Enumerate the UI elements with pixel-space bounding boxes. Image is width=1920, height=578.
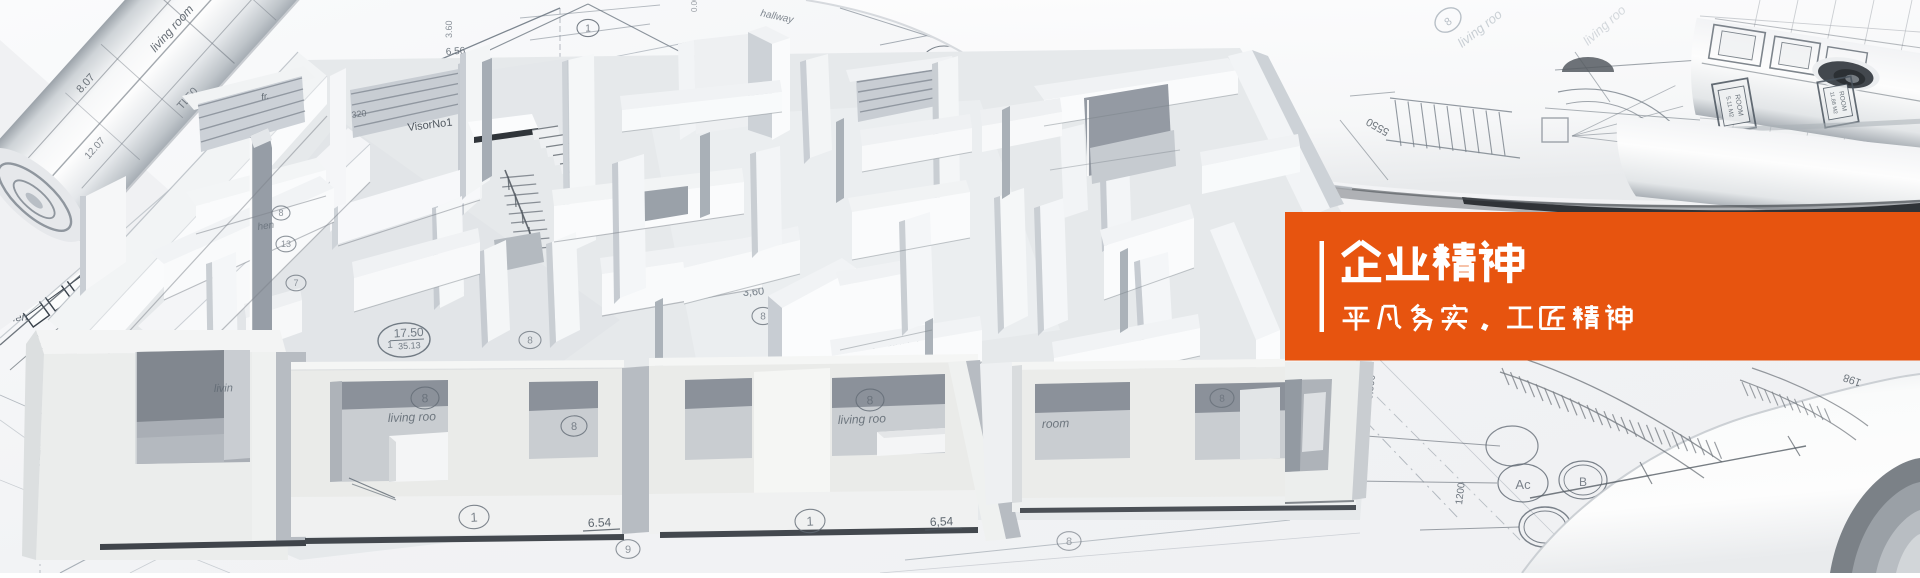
svg-text:320: 320: [351, 108, 367, 120]
svg-text:living roo: living roo: [388, 409, 437, 425]
svg-text:8: 8: [1219, 393, 1225, 404]
svg-text:8: 8: [866, 393, 873, 407]
svg-text:13: 13: [281, 239, 291, 249]
svg-text:1: 1: [806, 514, 814, 529]
svg-text:0.00: 0.00: [690, 0, 699, 12]
svg-text:8: 8: [527, 336, 533, 347]
svg-text:8: 8: [278, 208, 283, 218]
svg-text:8: 8: [1066, 536, 1072, 548]
svg-text:7: 7: [293, 278, 298, 288]
svg-text:Ac: Ac: [1515, 477, 1531, 492]
svg-text:8: 8: [421, 391, 428, 405]
svg-text:1: 1: [387, 340, 394, 351]
svg-text:35.13: 35.13: [398, 340, 421, 351]
svg-text:room: room: [1042, 416, 1070, 431]
svg-text:livin: livin: [214, 382, 233, 395]
svg-text:8: 8: [760, 312, 766, 323]
svg-text:3.60: 3.60: [444, 20, 454, 38]
svg-text:17.50: 17.50: [393, 325, 424, 341]
svg-text:8: 8: [571, 421, 578, 433]
svg-text:6,54: 6,54: [930, 514, 954, 529]
svg-text:1: 1: [470, 510, 478, 525]
svg-text:9: 9: [625, 544, 631, 556]
svg-text:6.54: 6.54: [588, 515, 612, 530]
svg-text:living roo: living roo: [838, 411, 887, 427]
